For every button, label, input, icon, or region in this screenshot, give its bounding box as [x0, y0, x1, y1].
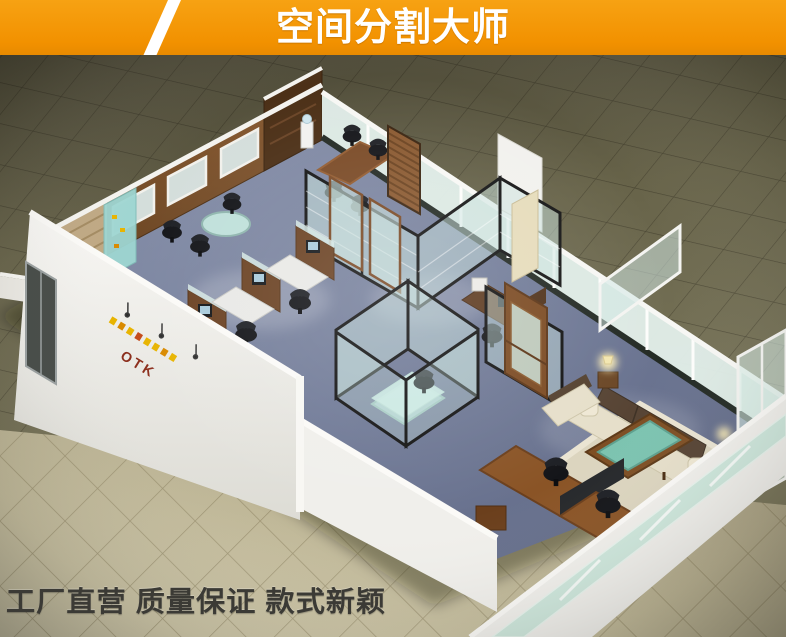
banner-title: 空间分割大师: [0, 0, 786, 55]
office-3d-render: OTK: [0, 0, 786, 637]
top-banner: 空间分割大师: [0, 0, 786, 55]
product-poster: OTK 空间分割大师 工厂直营 质量保证 款式新颖: [0, 0, 786, 637]
light-vignette: [0, 0, 786, 637]
footer-slogan: 工厂直营 质量保证 款式新颖: [6, 580, 386, 620]
